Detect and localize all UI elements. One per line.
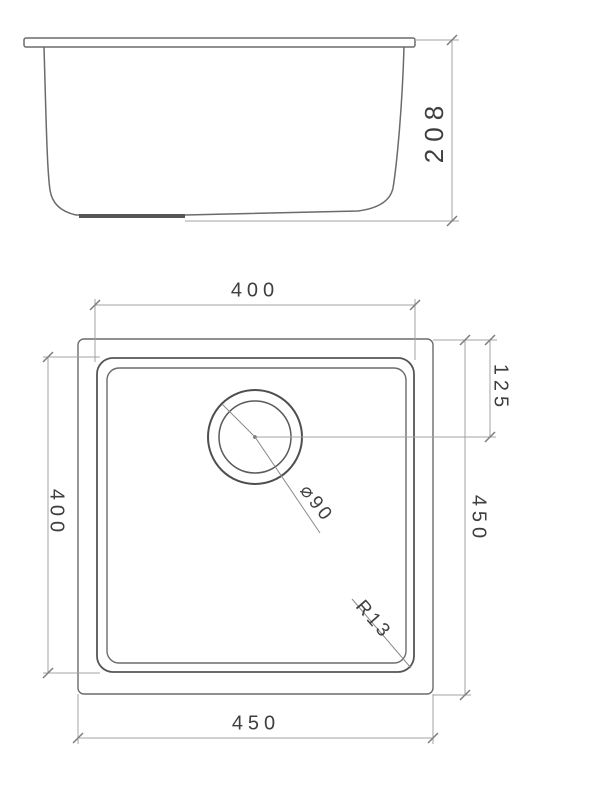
corner-radius-text: R13 [351, 596, 396, 643]
drawing-sheet: 208 400 400 [0, 0, 605, 800]
dimension-text-bowl-length-400: 400 [46, 489, 68, 537]
dimension-side-height: 208 [185, 35, 459, 226]
sink-left-wall-and-bottom [44, 47, 185, 215]
sink-rim-flange [24, 38, 415, 47]
dimension-bowl-width: 400 [90, 279, 420, 362]
dimension-text-overall-length-450: 450 [468, 495, 490, 543]
drain-diameter-text: ⌀90 [295, 481, 337, 527]
dimension-text-overall-width-450: 450 [232, 712, 280, 734]
dimension-text-height-208: 208 [419, 99, 449, 163]
side-view [24, 38, 415, 216]
sink-technical-drawing: 208 400 400 [0, 0, 605, 800]
dimension-bowl-length: 400 [43, 352, 100, 678]
dimension-text-bowl-width-400: 400 [231, 279, 279, 301]
dimension-overall-length: 450 [433, 335, 497, 700]
dimension-text-drain-offset-125: 125 [490, 364, 512, 412]
dimension-overall-width: 450 [73, 694, 438, 744]
dimension-drain-offset: 125 [255, 335, 512, 442]
sink-right-wall-and-bottom [185, 47, 404, 215]
